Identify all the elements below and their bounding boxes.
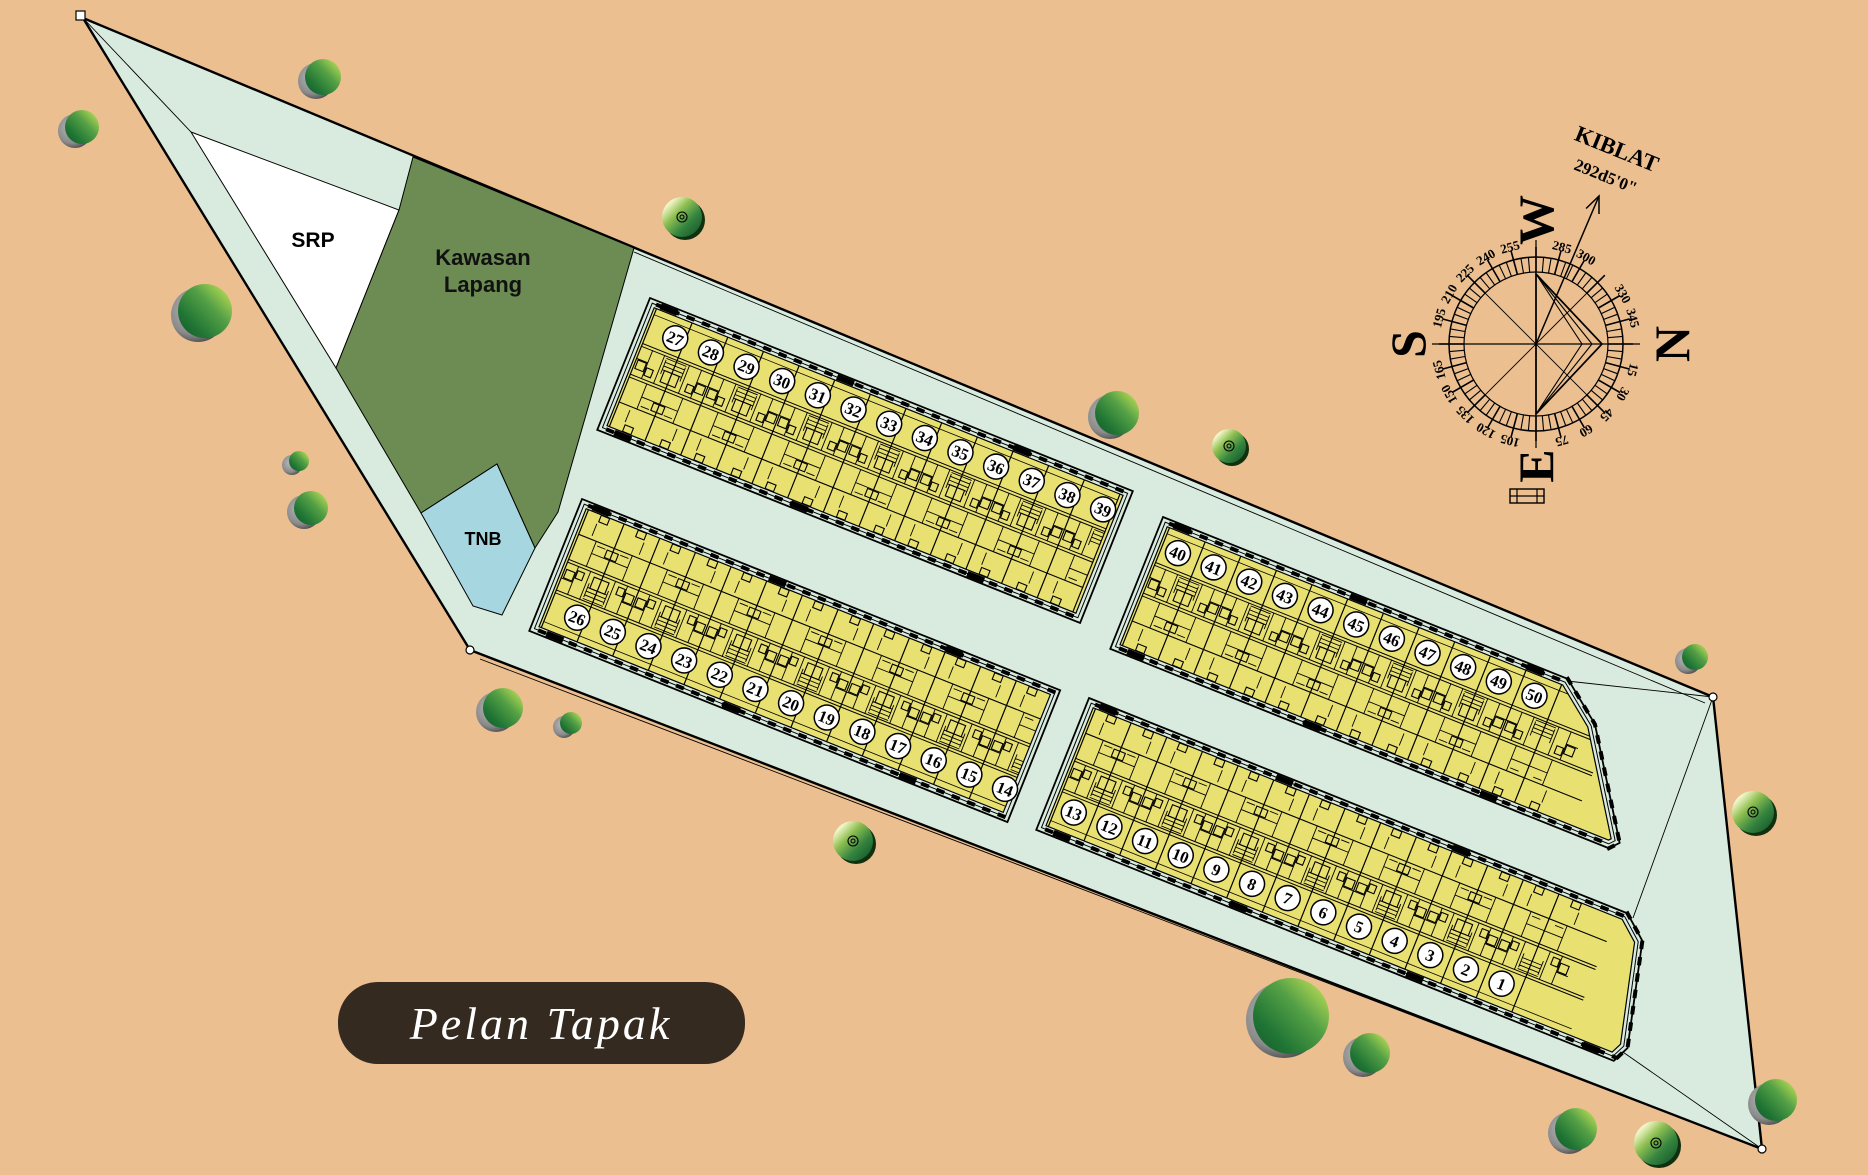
svg-text:TNB: TNB	[465, 529, 502, 549]
svg-text:S: S	[1380, 330, 1436, 358]
svg-text:Lapang: Lapang	[444, 272, 522, 297]
svg-text:N: N	[1644, 326, 1700, 362]
svg-text:Pelan Tapak: Pelan Tapak	[409, 998, 673, 1049]
svg-text:Kawasan: Kawasan	[435, 245, 530, 270]
svg-text:E: E	[1508, 449, 1564, 482]
svg-text:SRP: SRP	[291, 229, 334, 252]
